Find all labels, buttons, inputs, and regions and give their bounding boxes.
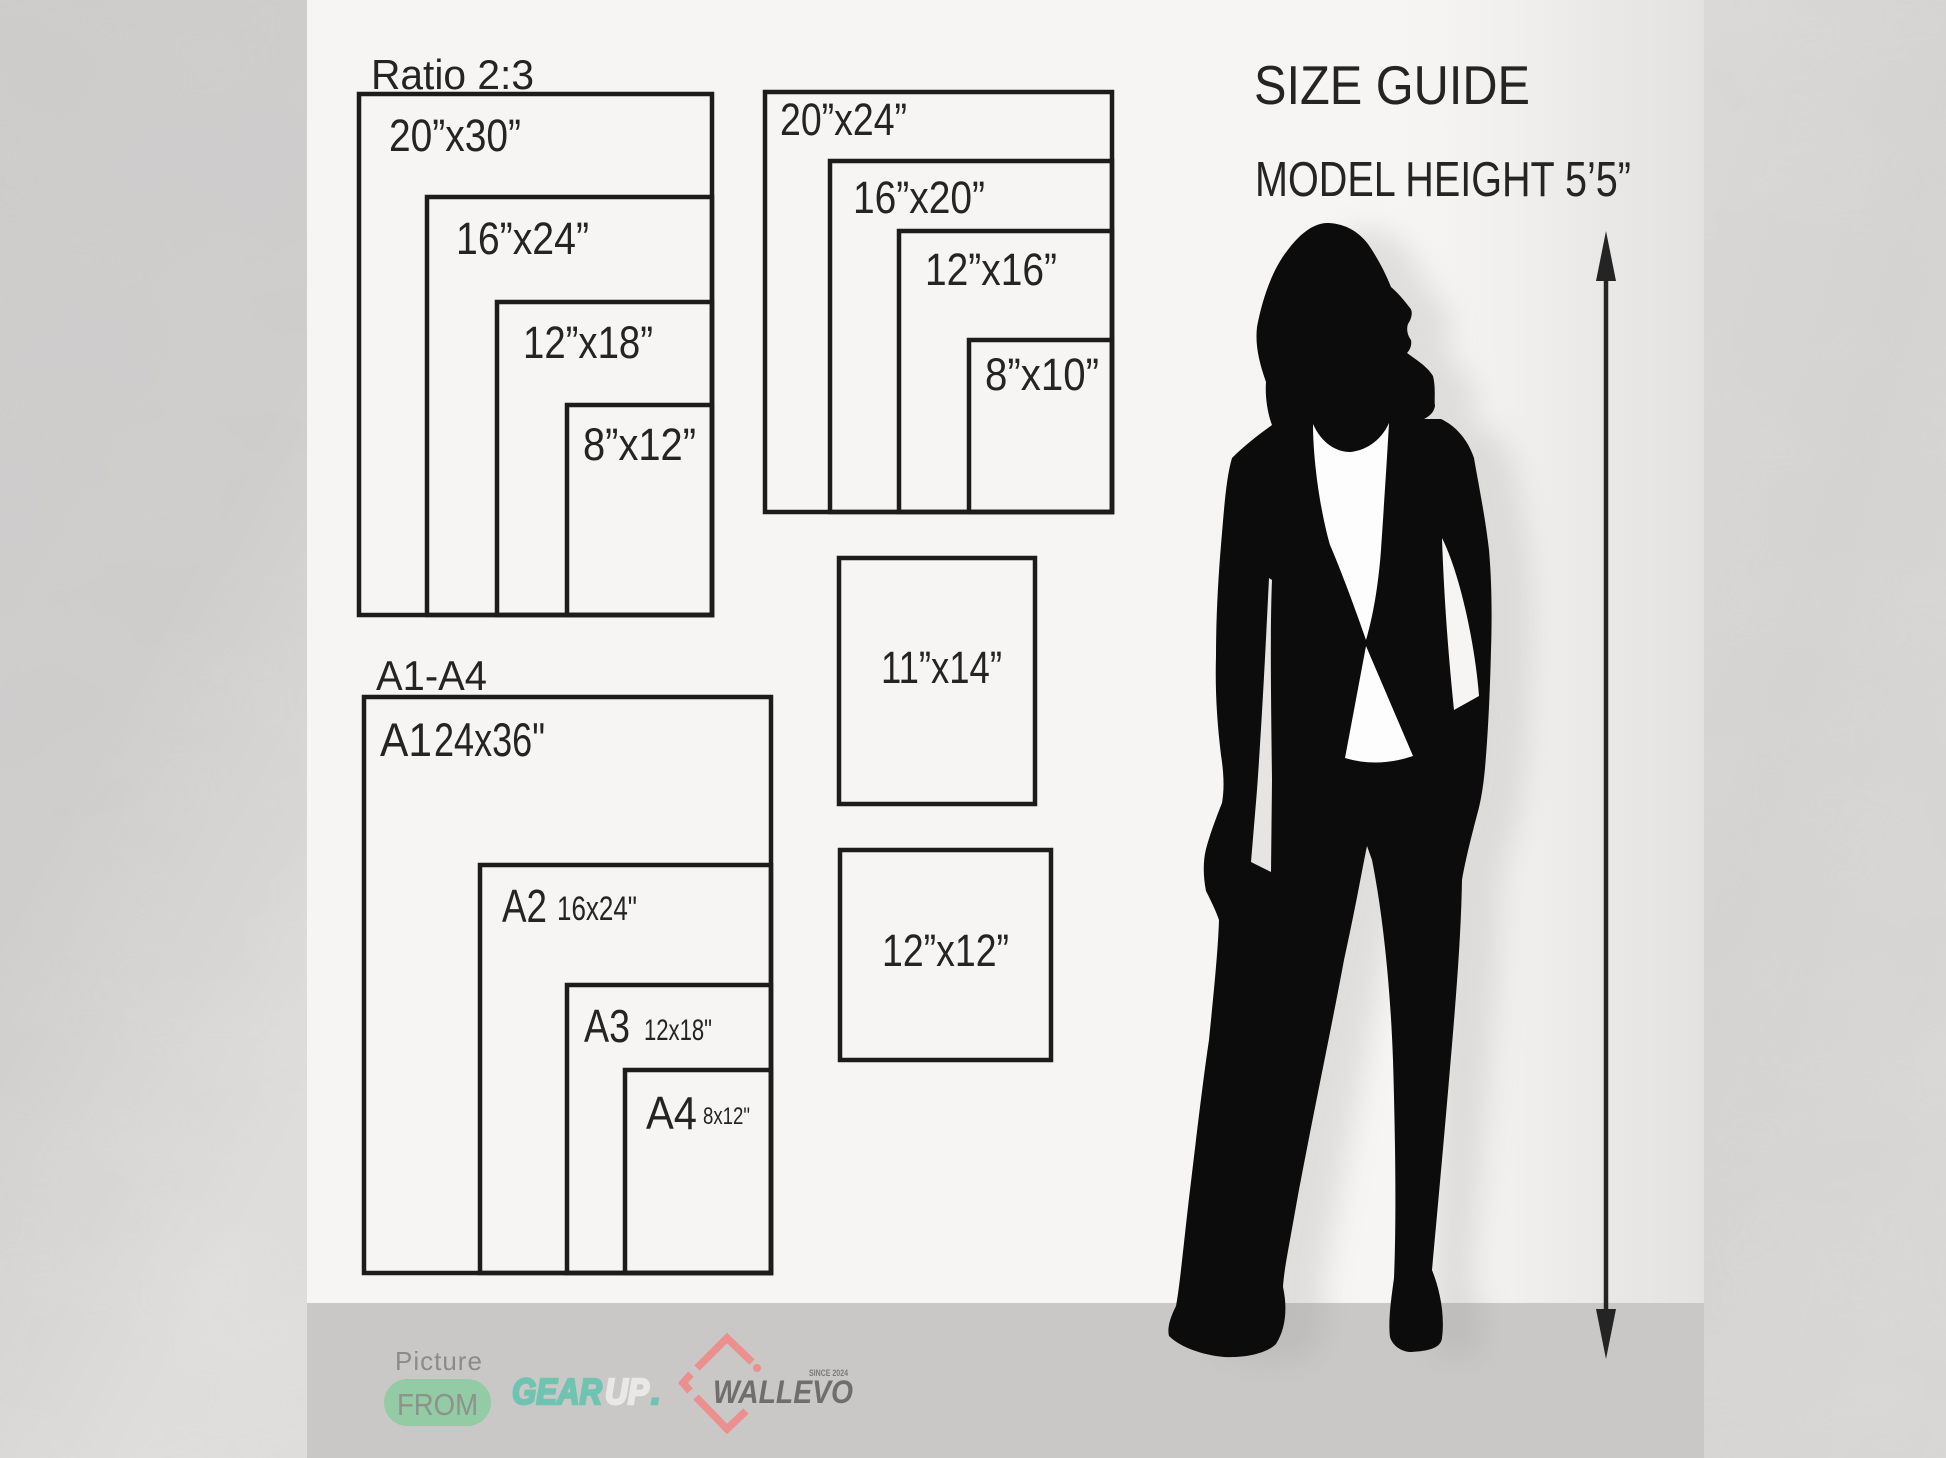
- svg-text:A1-A4: A1-A4: [376, 652, 487, 699]
- svg-text:Ratio 2:3: Ratio 2:3: [371, 51, 534, 98]
- svg-text:A3: A3: [584, 1000, 630, 1052]
- svg-text:WALLEVO: WALLEVO: [713, 1374, 853, 1410]
- svg-text:24x36": 24x36": [434, 713, 545, 766]
- svg-text:A1: A1: [380, 713, 432, 766]
- svg-text:MODEL HEIGHT 5’5”: MODEL HEIGHT 5’5”: [1255, 153, 1631, 207]
- svg-text:20”x24”: 20”x24”: [780, 94, 907, 145]
- svg-text:.: .: [651, 1371, 661, 1412]
- svg-text:16”x20”: 16”x20”: [853, 172, 985, 223]
- svg-text:12”x18”: 12”x18”: [523, 317, 653, 368]
- svg-text:GEAR: GEAR: [512, 1371, 602, 1412]
- svg-text:12x18": 12x18": [644, 1014, 712, 1047]
- svg-text:Picture: Picture: [395, 1346, 483, 1376]
- svg-text:UP: UP: [605, 1371, 650, 1412]
- svg-text:16”x24”: 16”x24”: [456, 213, 589, 264]
- svg-text:12”x12”: 12”x12”: [882, 925, 1009, 976]
- svg-text:FROM: FROM: [397, 1387, 478, 1422]
- svg-text:8”x10”: 8”x10”: [985, 349, 1099, 400]
- svg-text:11”x14”: 11”x14”: [881, 642, 1002, 693]
- svg-text:8”x12”: 8”x12”: [583, 419, 696, 470]
- svg-text:A4: A4: [646, 1087, 697, 1139]
- svg-text:16x24": 16x24": [557, 890, 637, 928]
- svg-text:A2: A2: [502, 880, 547, 932]
- svg-text:20”x30”: 20”x30”: [389, 110, 521, 161]
- svg-text:SIZE GUIDE: SIZE GUIDE: [1254, 54, 1530, 116]
- svg-text:12”x16”: 12”x16”: [925, 244, 1057, 295]
- svg-text:8x12": 8x12": [703, 1103, 750, 1130]
